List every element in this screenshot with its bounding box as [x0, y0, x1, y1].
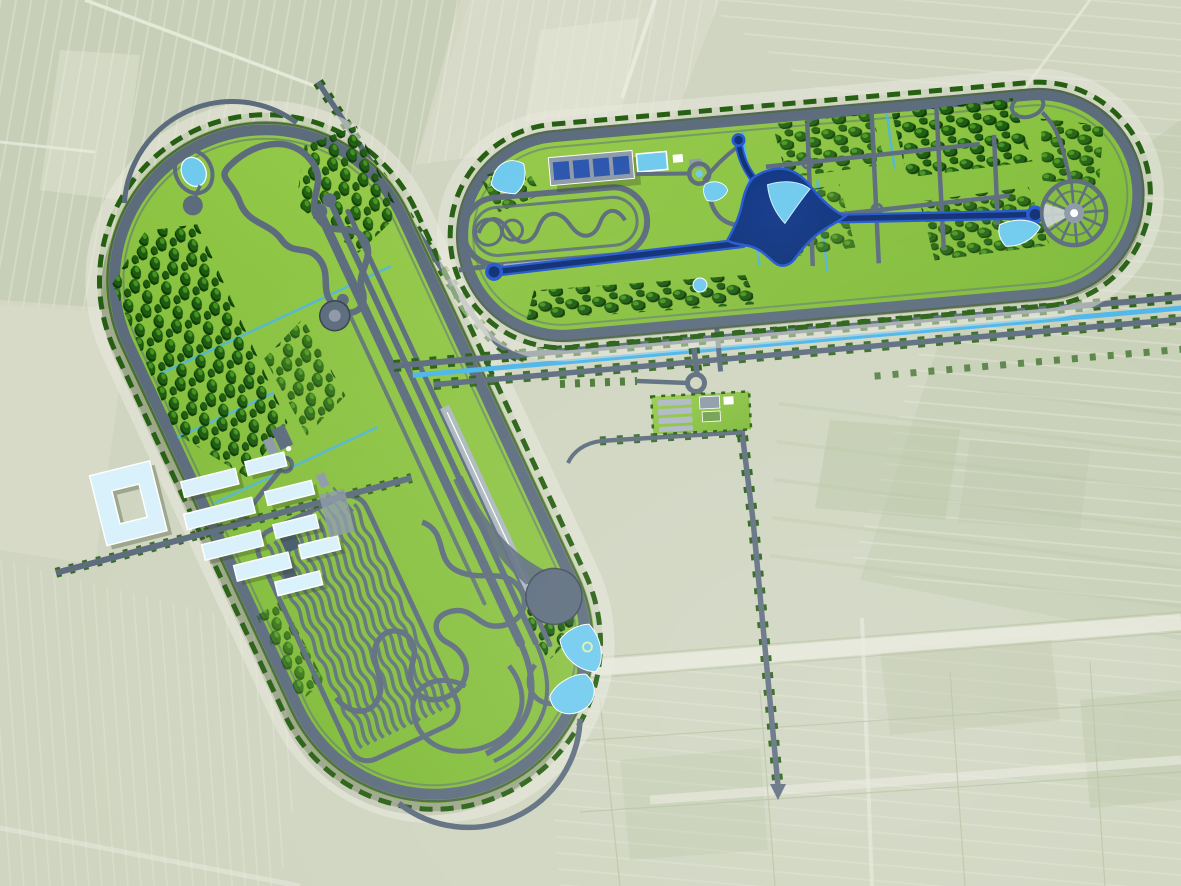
light-vignette: [0, 0, 1181, 886]
map-canvas: [0, 0, 1181, 886]
